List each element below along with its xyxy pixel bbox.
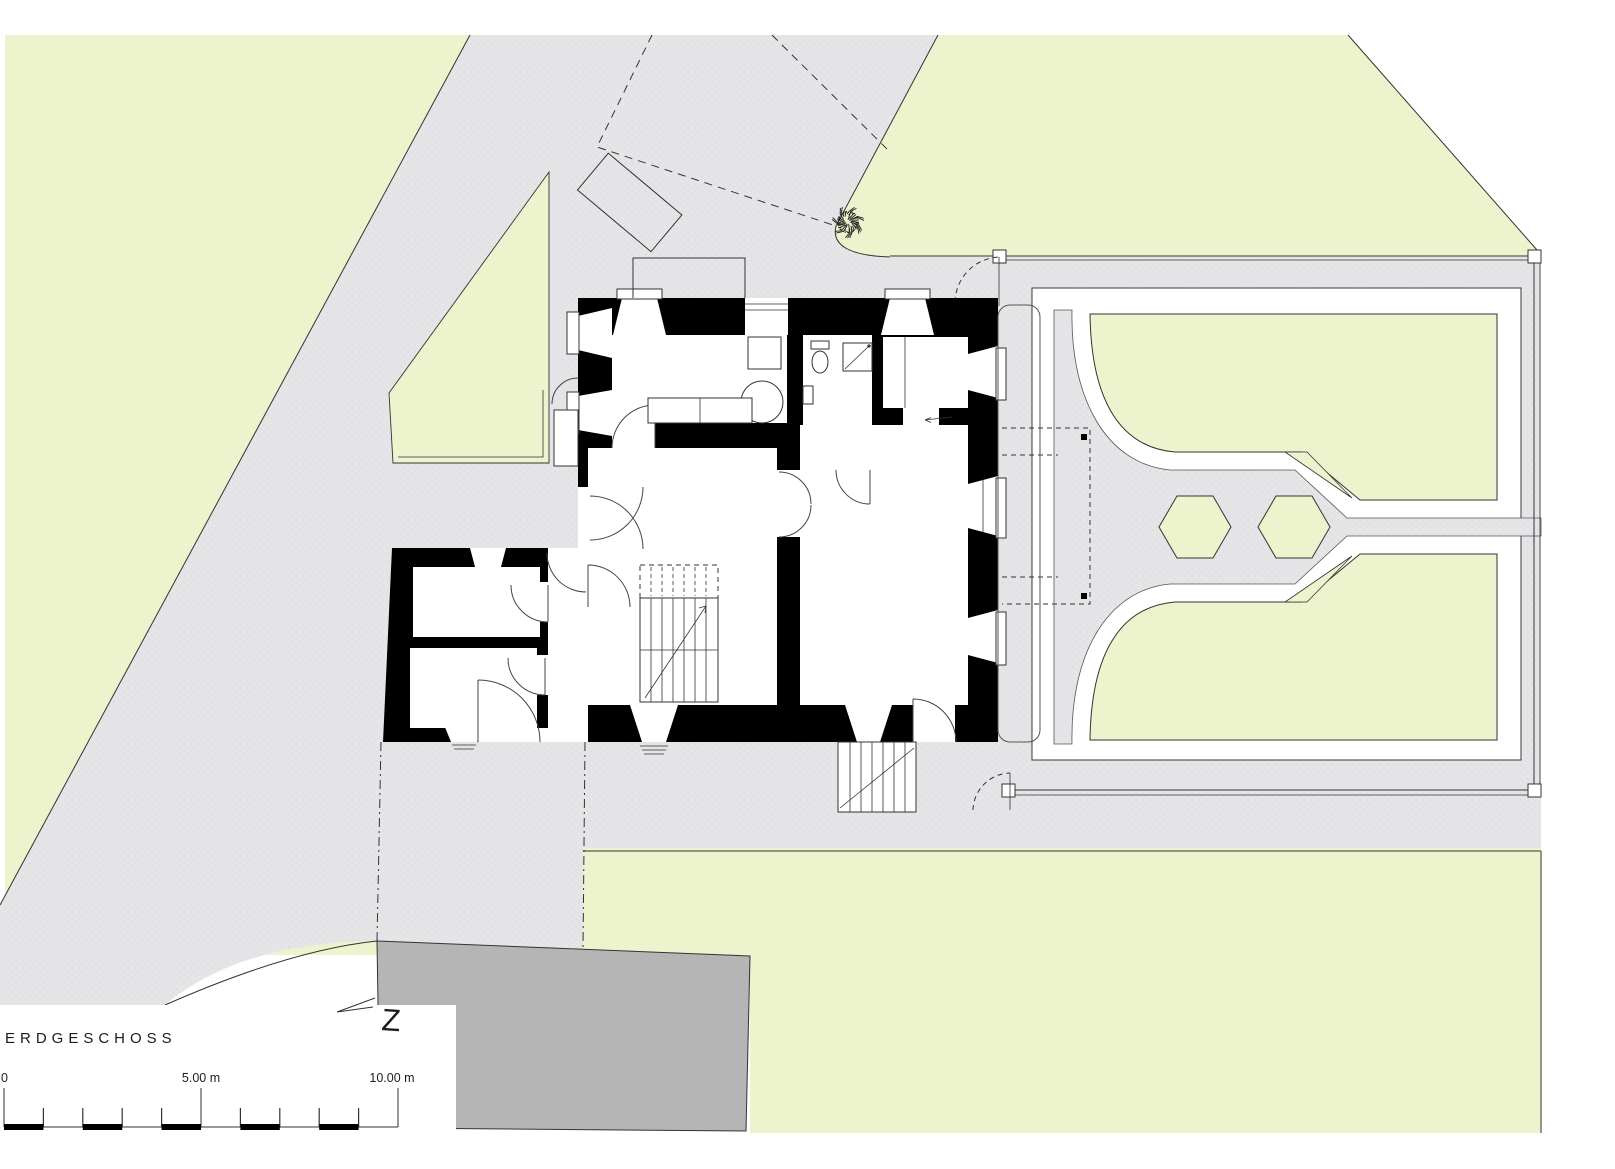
west-stoop [554, 410, 578, 466]
door-opening [836, 450, 870, 470]
scale-tick-label: 5.00 m [182, 1071, 220, 1085]
formal-garden [1032, 288, 1541, 760]
door-opening [612, 423, 655, 448]
post-marker [1081, 434, 1087, 440]
fence-post [1528, 784, 1541, 797]
scale-tick-label: 10.00 m [369, 1071, 414, 1085]
scale-tick-label: 0 [1, 1071, 8, 1085]
post-marker [1081, 593, 1087, 599]
fence-post [1002, 784, 1015, 797]
door-opening [548, 548, 588, 567]
door-opening [903, 408, 939, 425]
floor-label: ERDGESCHOSS [5, 1030, 177, 1047]
plan-sheet: ERDGESCHOSS Z 0 5.00 m 10.00 m [0, 0, 1615, 1169]
fence-post [993, 250, 1006, 263]
fence-post [1528, 250, 1541, 263]
main-entry-opening [578, 487, 590, 549]
se-door-opening [913, 705, 955, 742]
north-letter: Z [381, 1002, 402, 1038]
annex-room-1 [413, 567, 540, 637]
floor-plan-canvas: ERDGESCHOSS Z 0 5.00 m 10.00 m [0, 0, 1615, 1169]
room-ne [883, 337, 968, 408]
door-opening [533, 582, 552, 622]
sheet-margin-bottom [0, 1133, 1615, 1169]
door-opening [578, 565, 592, 609]
door-opening [777, 470, 800, 537]
room-east [800, 425, 968, 705]
stair-exterior [838, 742, 916, 812]
